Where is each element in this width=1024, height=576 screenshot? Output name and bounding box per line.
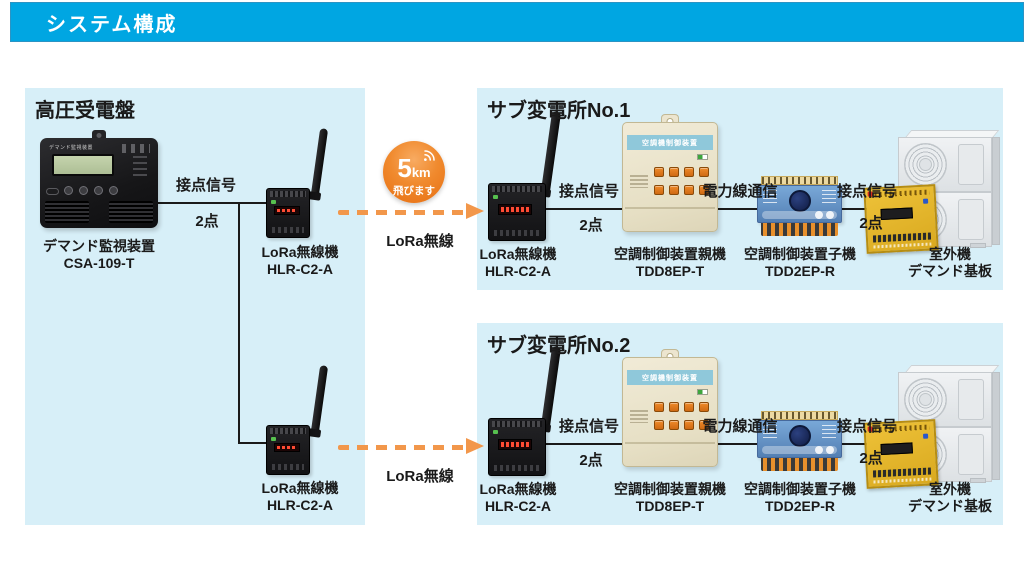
device-model: HLR-C2-A — [448, 498, 588, 515]
terminal-strip — [492, 421, 542, 427]
panel-seam — [625, 442, 715, 444]
device-model: HLR-C2-A — [448, 263, 588, 280]
points-label: 2点 — [849, 212, 893, 233]
device-model: HLR-C2-A — [230, 497, 370, 514]
channel-button — [654, 167, 664, 177]
side-panel — [958, 379, 984, 420]
header-bar: システム構成 — [10, 2, 1024, 42]
power-led — [271, 200, 276, 204]
device-name: 空調制御装置子機 — [730, 246, 870, 263]
device-face-label: デマンド監視装置 — [49, 144, 93, 151]
round-button — [64, 186, 73, 195]
panel-seam — [625, 207, 715, 209]
device-model: デマンド基板 — [880, 498, 1020, 515]
device-face-label: 空調機制御装置 — [627, 135, 713, 150]
contact-signal-label: 接点信号 — [825, 180, 909, 201]
device-face-label: 空調機制御装置 — [627, 370, 713, 385]
device-lora-radio — [266, 425, 310, 475]
side-face — [992, 137, 1000, 245]
power-indicator — [697, 154, 708, 160]
power-led — [493, 195, 498, 199]
device-name: 室外機 — [880, 481, 1020, 498]
side-face — [992, 372, 1000, 480]
dip-switches — [272, 227, 304, 233]
device-model: TDD2EP-R — [730, 263, 870, 280]
device-body — [266, 425, 310, 475]
screw-terminals — [761, 458, 838, 471]
device-name: 空調制御装置親機 — [600, 246, 740, 263]
rotary-dial — [789, 190, 811, 212]
powerline-label: 電力線通信 — [699, 180, 781, 201]
device-caption: 空調制御装置親機 TDD8EP-T — [600, 481, 740, 515]
device-body — [488, 183, 546, 241]
connection-line — [715, 443, 761, 445]
device-caption: LoRa無線機 HLR-C2-A — [448, 246, 588, 280]
lcd-screen — [52, 154, 114, 176]
terminal-strip — [492, 186, 542, 192]
vent-grille — [109, 201, 153, 223]
fan-grille — [904, 378, 947, 421]
device-name: LoRa無線機 — [230, 480, 370, 497]
device-caption: LoRa無線機 HLR-C2-A — [230, 244, 370, 278]
channel-button — [684, 402, 694, 412]
connection-line — [238, 442, 268, 444]
unit-section — [898, 137, 992, 192]
channel-button — [654, 420, 664, 430]
channel-button — [699, 402, 709, 412]
vent-grille — [45, 201, 89, 223]
connection-line — [537, 443, 625, 445]
panel-receiving-board: 高圧受電盤 接点信号 2点 デマンド監視装置 — [25, 88, 365, 525]
wifi-waves-icon — [422, 148, 437, 163]
device-model: TDD8EP-T — [600, 263, 740, 280]
buzzer-slot — [46, 188, 59, 195]
points-label: 2点 — [183, 210, 231, 231]
device-name: 室外機 — [880, 246, 1020, 263]
channel-button — [684, 167, 694, 177]
system-configuration-diagram: システム構成 高圧受電盤 接点信号 2点 デマンド監視装置 — [0, 0, 1024, 576]
fan-grille — [904, 143, 947, 186]
panel-title: サブ変電所No.2 — [487, 329, 630, 358]
round-button — [79, 186, 88, 195]
device-model: デマンド基板 — [880, 263, 1020, 280]
device-caption: 空調制御装置親機 TDD8EP-T — [600, 246, 740, 280]
channel-button — [684, 185, 694, 195]
button-row — [64, 186, 118, 195]
panel-substation-2: サブ変電所No.2 接点信号 2点 電力線通信 接点信号 2点 LoRa無線機 … — [477, 323, 1003, 525]
indicator-labels — [122, 144, 150, 153]
unit-section — [898, 372, 992, 427]
power-led — [271, 437, 276, 441]
terminal-strip — [270, 191, 306, 197]
side-panel — [958, 434, 984, 475]
pcb-component — [923, 434, 928, 439]
channel-button — [669, 167, 679, 177]
contact-signal-label: 接点信号 — [545, 415, 633, 436]
power-led — [493, 430, 498, 434]
panel-title: サブ変電所No.1 — [487, 94, 630, 123]
device-body: 空調機制御装置 — [622, 122, 718, 232]
button-band — [762, 446, 837, 454]
device-name: 空調制御装置子機 — [730, 481, 870, 498]
connection-line — [715, 208, 761, 210]
device-caption: LoRa無線機 HLR-C2-A — [230, 480, 370, 514]
channel-button — [669, 420, 679, 430]
points-label: 2点 — [569, 449, 613, 470]
device-lora-radio — [488, 418, 546, 476]
device-model: CSA-109-T — [29, 255, 169, 272]
segment-display — [274, 443, 300, 452]
device-body — [488, 418, 546, 476]
device-model: TDD2EP-R — [730, 498, 870, 515]
arrow-head-icon — [466, 438, 484, 454]
terminal-strip — [270, 428, 306, 434]
connection-line — [238, 202, 240, 444]
segment-display — [498, 204, 532, 215]
pcb-component — [923, 199, 928, 204]
page-title: システム構成 — [46, 8, 177, 37]
device-body: 空調機制御装置 — [622, 357, 718, 467]
points-label: 2点 — [569, 214, 613, 235]
panel-substation-1: サブ変電所No.1 接点信号 2点 電力線通信 接点信号 2点 LoRa無線機 … — [477, 88, 1003, 290]
channel-button — [684, 420, 694, 430]
range-badge: 5km 飛びます — [383, 141, 445, 203]
antenna — [311, 128, 328, 194]
segment-display — [498, 439, 532, 450]
round-button — [94, 186, 103, 195]
device-body: デマンド監視装置 — [40, 138, 158, 228]
status-leds — [133, 156, 147, 180]
contact-signal-label: 接点信号 — [825, 415, 909, 436]
connection-line — [537, 208, 625, 210]
pcb-connector — [873, 232, 931, 242]
device-caption: 空調制御装置子機 TDD2EP-R — [730, 481, 870, 515]
device-ac-control-master: 空調機制御装置 — [622, 349, 718, 467]
device-caption: LoRa無線機 HLR-C2-A — [448, 481, 588, 515]
side-panel — [958, 144, 984, 185]
lora-link-label: LoRa無線 — [368, 230, 472, 251]
lora-dashed-arrow — [338, 445, 468, 450]
device-name: デマンド監視装置 — [29, 238, 169, 255]
arrow-head-icon — [466, 203, 484, 219]
device-name: LoRa無線機 — [230, 244, 370, 261]
range-caption: 飛びます — [393, 183, 435, 198]
segment-display — [274, 206, 300, 215]
device-caption: 空調制御装置子機 TDD2EP-R — [730, 246, 870, 280]
antenna — [311, 365, 328, 431]
points-label: 2点 — [849, 447, 893, 468]
round-button — [109, 186, 118, 195]
channel-button — [669, 185, 679, 195]
pcb-connector — [873, 467, 931, 477]
channel-button — [654, 185, 664, 195]
side-panel — [958, 199, 984, 240]
dip-switches — [494, 465, 540, 471]
device-model: TDD8EP-T — [600, 498, 740, 515]
connection-line — [158, 202, 268, 204]
lora-link-label: LoRa無線 — [368, 465, 472, 486]
button-band — [762, 211, 837, 219]
device-body — [266, 188, 310, 238]
contact-signal-label: 接点信号 — [156, 174, 256, 195]
device-ac-control-master: 空調機制御装置 — [622, 114, 718, 232]
panel-title: 高圧受電盤 — [35, 94, 135, 123]
device-lora-radio — [488, 183, 546, 241]
device-caption: 室外機 デマンド基板 — [880, 481, 1020, 515]
device-demand-monitor: デマンド監視装置 — [40, 130, 158, 228]
channel-button — [699, 167, 709, 177]
dip-switches — [272, 464, 304, 470]
power-indicator — [697, 389, 708, 395]
powerline-label: 電力線通信 — [699, 415, 781, 436]
channel-button — [654, 402, 664, 412]
device-model: HLR-C2-A — [230, 261, 370, 278]
device-lora-radio — [266, 188, 310, 238]
device-caption: 室外機 デマンド基板 — [880, 246, 1020, 280]
rotary-dial — [789, 425, 811, 447]
lora-dashed-arrow — [338, 210, 468, 215]
screw-terminals — [761, 223, 838, 236]
contact-signal-label: 接点信号 — [545, 180, 633, 201]
device-caption: デマンド監視装置 CSA-109-T — [29, 238, 169, 272]
dip-switches — [494, 230, 540, 236]
channel-button — [669, 402, 679, 412]
device-name: 空調制御装置親機 — [600, 481, 740, 498]
